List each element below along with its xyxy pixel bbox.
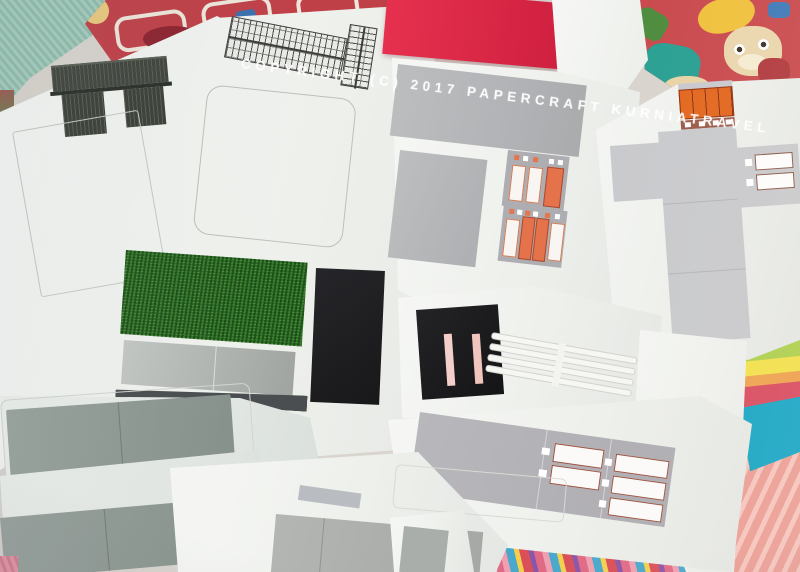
window-dot: [601, 479, 609, 487]
fold-line: [118, 402, 124, 474]
window-dot: [549, 159, 555, 165]
cross-arm-left: [610, 143, 664, 202]
monkey-eye: [734, 44, 745, 55]
strip-fold-line: [213, 346, 217, 390]
window-dot: [525, 210, 531, 216]
door-white: [525, 167, 543, 204]
window-dot: [555, 214, 561, 220]
door-strip-upper: [502, 150, 570, 213]
window-dot: [599, 500, 607, 508]
window-dot: [523, 156, 529, 162]
window-dot: [545, 213, 551, 219]
window-frame: [552, 443, 604, 469]
window-dot: [533, 211, 539, 217]
window-dot: [604, 458, 612, 466]
fold-line: [104, 509, 110, 571]
fold-line: [663, 198, 741, 204]
door-white: [502, 218, 520, 257]
window-dot: [533, 157, 539, 163]
mat-blue-bit-2: [768, 2, 790, 18]
base-gray-panel-4: [399, 526, 449, 572]
cross-arm-right: [734, 144, 800, 208]
pink-slot: [444, 334, 456, 386]
window-dot: [746, 179, 753, 186]
platform-fold-outline: [192, 84, 357, 249]
window-dot: [541, 447, 550, 455]
black-column-piece: [310, 268, 385, 405]
window-dot: [509, 209, 515, 215]
window-frame: [607, 497, 663, 522]
window-dot: [514, 155, 520, 161]
window-frame: [611, 475, 667, 500]
door-white: [547, 222, 565, 261]
window-dot: [558, 160, 564, 166]
window-dot: [517, 210, 523, 216]
door-strip-lower: [498, 204, 568, 268]
pink-slot: [472, 334, 483, 384]
window-frame: [755, 152, 794, 171]
window-frame: [614, 454, 670, 479]
grass-texture-piece: [120, 250, 307, 346]
door-orange: [543, 167, 564, 209]
photo-root: COPYRIGHT (C) 2017 PAPERCRAFT KURNIATRAV…: [0, 0, 800, 572]
fold-line: [319, 518, 325, 572]
window-dot: [745, 159, 752, 166]
window-frame: [756, 172, 795, 191]
wall-gray-small: [388, 150, 488, 267]
monkey-eye: [758, 39, 769, 50]
door-white: [508, 165, 526, 202]
fold-line: [668, 268, 746, 274]
mat-bottomleft-pink: [0, 556, 18, 572]
